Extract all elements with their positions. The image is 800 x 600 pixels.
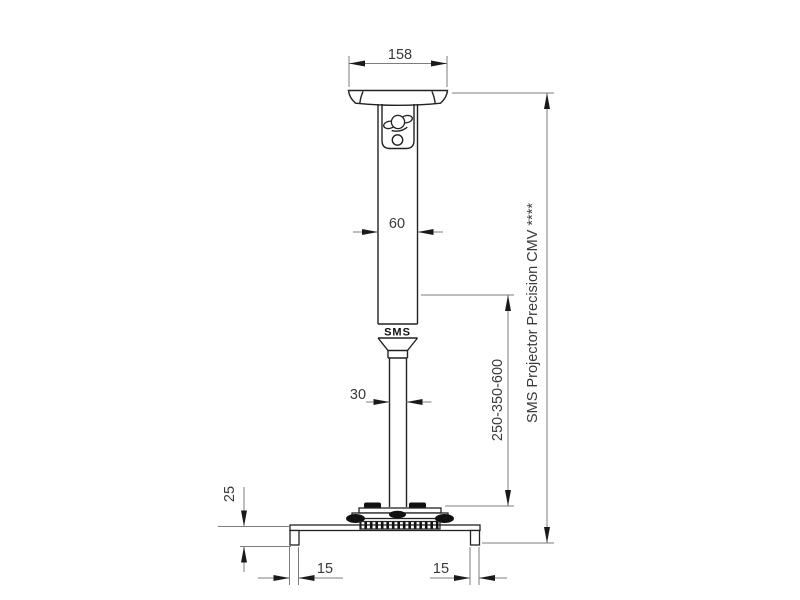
- dim-column-width: 60: [353, 216, 443, 235]
- dim-bracket-drop: 25: [218, 486, 291, 572]
- ceiling-plate: [349, 91, 448, 106]
- dim-column-width-label: 60: [389, 216, 405, 232]
- wing-nut-icon: [382, 112, 414, 133]
- dim-height-range: 250-350-600: [421, 295, 514, 506]
- dim-plate-width: 158: [349, 47, 447, 87]
- dim-height-range-label: 250-350-600: [490, 359, 506, 441]
- rail-hatched: [360, 522, 440, 530]
- bracket-leg-right: [471, 531, 480, 546]
- plate-bend-line-left: [360, 92, 363, 104]
- projector-mount-drawing: SMS 158: [0, 0, 800, 600]
- dim-tube-width-label: 30: [350, 387, 366, 403]
- technical-drawing-page: SMS 158: [0, 0, 800, 600]
- column-taper: [378, 338, 418, 358]
- bracket-leg-left: [290, 531, 299, 546]
- plate-bend-line-right: [432, 92, 435, 104]
- sms-logo: SMS: [384, 327, 411, 339]
- tab-hole: [392, 135, 402, 145]
- dim-tube-width: 30: [350, 387, 432, 405]
- dim-plate-width-label: 158: [388, 47, 412, 63]
- product-name-label: SMS Projector Precision CMV ****: [525, 203, 541, 423]
- dim-overall-height: SMS Projector Precision CMV ****: [452, 93, 554, 543]
- center-knob: [389, 511, 406, 519]
- drop-tube: [390, 358, 407, 507]
- mount-head: [346, 503, 454, 530]
- support-column: [378, 104, 418, 324]
- dim-foot-left: 15: [258, 547, 343, 585]
- dim-foot-left-label: 15: [317, 561, 333, 577]
- dim-bracket-drop-label: 25: [222, 486, 238, 502]
- sms-logo-band: SMS: [378, 327, 418, 339]
- dim-foot-right: 15: [430, 547, 507, 585]
- dim-foot-right-label: 15: [433, 561, 449, 577]
